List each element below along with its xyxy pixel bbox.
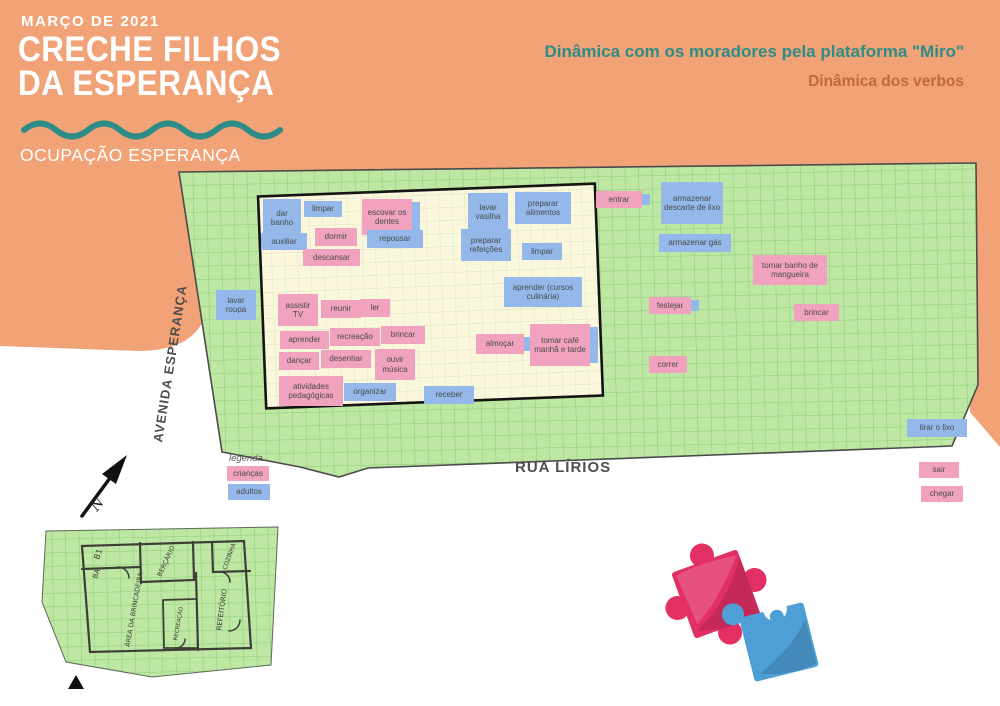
notes-layer: dar banholimparescovar os dentesauxiliar… xyxy=(0,0,1000,706)
sticky-note[interactable]: festejar xyxy=(649,297,691,314)
sticky-note[interactable]: brincar xyxy=(381,326,425,344)
sticky-note[interactable]: organizar xyxy=(344,383,396,401)
sticky-note[interactable]: descansar xyxy=(303,249,360,266)
sticky-note[interactable]: repousar xyxy=(367,230,423,248)
sticky-note[interactable]: lavar roupa xyxy=(216,290,256,320)
sticky-note[interactable]: brincar xyxy=(794,304,839,321)
sticky-note[interactable]: aprender (cursos culinária) xyxy=(504,277,582,307)
sticky-note[interactable]: tomar banho de mangueira xyxy=(753,255,827,285)
sticky-note[interactable]: preparar refeições xyxy=(461,229,511,261)
sticky-note[interactable]: limpar xyxy=(304,201,342,217)
sticky-note[interactable]: chegar xyxy=(921,486,963,502)
sticky-note[interactable]: tomar café manhã e tarde xyxy=(530,324,590,366)
sticky-note[interactable]: desenhar xyxy=(321,350,371,368)
sticky-note[interactable]: lavar vasilha xyxy=(468,193,508,231)
sticky-note[interactable]: ler xyxy=(360,299,390,317)
sticky-note[interactable]: limpar xyxy=(522,243,562,260)
sticky-note[interactable]: recreação xyxy=(330,328,380,346)
sticky-note[interactable]: entrar xyxy=(596,191,642,208)
sticky-note[interactable]: ouvir música xyxy=(375,349,415,380)
sticky-note[interactable]: correr xyxy=(649,356,687,373)
sticky-note[interactable]: auxiliar xyxy=(261,233,307,250)
sticky-note[interactable]: aprender xyxy=(280,331,329,349)
sticky-note[interactable]: preparar alimentos xyxy=(515,192,571,224)
sticky-note[interactable]: sair xyxy=(919,462,959,478)
sticky-note[interactable]: tirar o lixo xyxy=(907,419,967,437)
sticky-note[interactable]: dormir xyxy=(315,228,357,246)
sticky-note[interactable]: armazenar gás xyxy=(659,234,731,252)
sticky-note[interactable]: assistir TV xyxy=(278,294,318,326)
sticky-note[interactable]: almoçar xyxy=(476,334,524,354)
sticky-note[interactable]: reunir xyxy=(321,300,361,318)
sticky-note[interactable]: dançar xyxy=(279,352,319,370)
sticky-note[interactable]: dar banho xyxy=(263,199,301,237)
sticky-note[interactable]: armazenar descarte de lixo xyxy=(661,182,723,224)
sticky-note[interactable]: receber xyxy=(424,386,474,404)
sticky-note[interactable]: atividades pedagógicas xyxy=(279,376,343,406)
